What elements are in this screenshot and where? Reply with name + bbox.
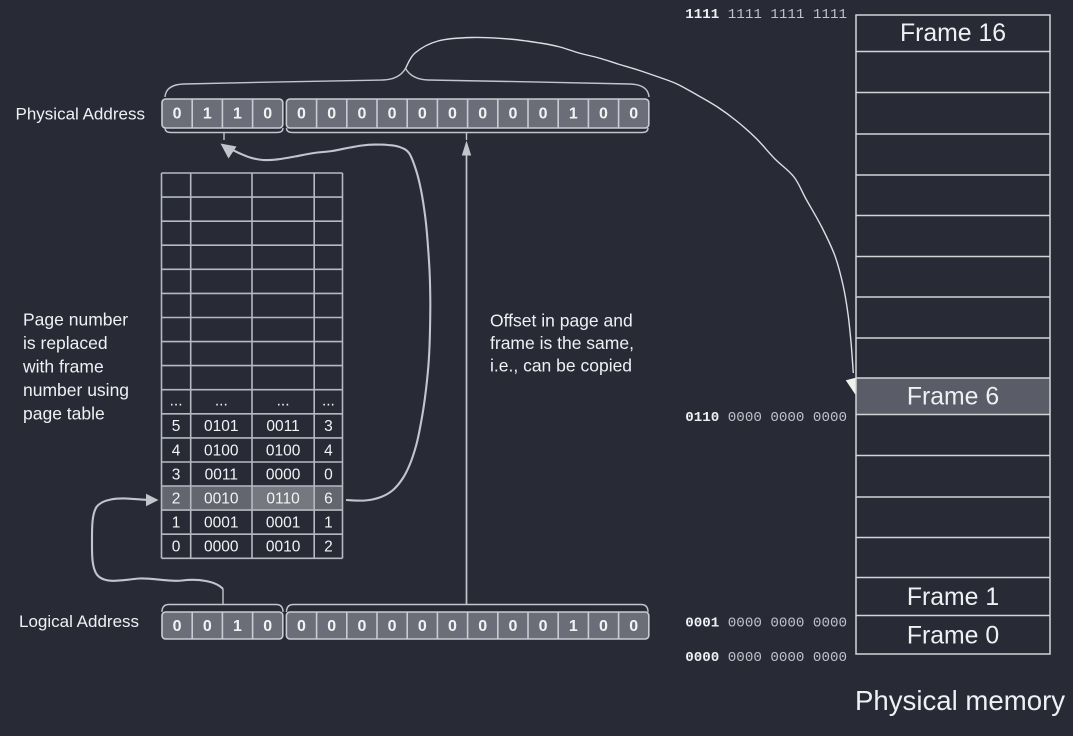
svg-text:number using: number using: [23, 380, 129, 400]
svg-text:1: 1: [233, 618, 242, 635]
svg-text:1: 1: [203, 106, 212, 123]
svg-text:0001 0000 0000 0000: 0001 0000 0000 0000: [685, 616, 847, 632]
svg-text:3: 3: [324, 418, 333, 435]
svg-text:0011: 0011: [266, 418, 299, 435]
svg-text:0: 0: [297, 106, 306, 123]
svg-text:Offset in page and: Offset in page and: [490, 311, 633, 331]
svg-text:...: ...: [277, 393, 290, 410]
svg-text:0010: 0010: [204, 491, 239, 508]
svg-text:...: ...: [322, 393, 335, 410]
svg-text:0: 0: [599, 106, 608, 123]
svg-text:0: 0: [508, 106, 517, 123]
svg-text:0: 0: [357, 106, 366, 123]
svg-text:0: 0: [629, 106, 638, 123]
svg-text:0011: 0011: [205, 466, 238, 483]
svg-text:0000: 0000: [266, 466, 301, 483]
svg-text:0: 0: [388, 106, 397, 123]
svg-text:0: 0: [448, 106, 457, 123]
svg-text:1: 1: [172, 515, 181, 532]
svg-text:4: 4: [324, 442, 333, 459]
svg-text:0: 0: [327, 618, 336, 635]
svg-text:...: ...: [170, 393, 183, 410]
svg-text:with frame: with frame: [22, 357, 104, 377]
svg-text:0: 0: [297, 618, 306, 635]
svg-text:Page number: Page number: [23, 310, 128, 330]
svg-text:0110 0000 0000 0000: 0110 0000 0000 0000: [685, 410, 847, 426]
svg-text:frame is the same,: frame is the same,: [490, 333, 634, 353]
svg-text:0: 0: [508, 618, 517, 635]
svg-text:0: 0: [263, 106, 272, 123]
svg-text:0001: 0001: [204, 515, 238, 532]
svg-text:0: 0: [357, 618, 366, 635]
svg-text:4: 4: [172, 442, 181, 459]
svg-text:0: 0: [539, 106, 548, 123]
svg-text:0: 0: [478, 618, 487, 635]
svg-text:1: 1: [569, 618, 578, 635]
svg-text:5: 5: [172, 418, 181, 435]
svg-text:0: 0: [629, 618, 638, 635]
svg-text:0: 0: [599, 618, 608, 635]
svg-text:0001: 0001: [266, 515, 300, 532]
svg-text:i.e., can be copied: i.e., can be copied: [490, 356, 632, 376]
svg-text:Logical Address: Logical Address: [19, 612, 139, 631]
svg-text:Frame 0: Frame 0: [907, 623, 999, 650]
svg-text:is replaced: is replaced: [23, 333, 108, 353]
svg-text:0: 0: [203, 618, 212, 635]
svg-text:2: 2: [324, 539, 333, 556]
svg-text:Physical Address: Physical Address: [16, 105, 145, 124]
svg-text:0: 0: [418, 106, 427, 123]
svg-text:0100: 0100: [266, 442, 301, 459]
svg-text:0: 0: [327, 106, 336, 123]
svg-text:0: 0: [418, 618, 427, 635]
svg-text:0: 0: [324, 466, 333, 483]
svg-text:1: 1: [233, 106, 242, 123]
svg-text:0: 0: [173, 618, 182, 635]
svg-text:3: 3: [172, 466, 181, 483]
svg-text:page table: page table: [23, 404, 105, 424]
svg-text:0: 0: [263, 618, 272, 635]
svg-text:1111 1111 1111 1111: 1111 1111 1111 1111: [685, 7, 847, 23]
svg-text:0010: 0010: [266, 539, 301, 556]
svg-text:Frame 1: Frame 1: [907, 584, 999, 611]
svg-text:0: 0: [478, 106, 487, 123]
svg-text:0: 0: [388, 618, 397, 635]
svg-text:...: ...: [215, 393, 228, 410]
svg-text:0: 0: [172, 539, 181, 556]
svg-text:0000 0000 0000 0000: 0000 0000 0000 0000: [685, 650, 847, 666]
svg-text:0: 0: [448, 618, 457, 635]
svg-text:6: 6: [324, 491, 333, 508]
svg-text:Physical memory: Physical memory: [855, 685, 1065, 716]
svg-text:0110: 0110: [266, 491, 300, 508]
svg-text:0: 0: [539, 618, 548, 635]
svg-text:1: 1: [324, 515, 333, 532]
svg-text:1: 1: [569, 106, 578, 123]
svg-text:Frame 16: Frame 16: [900, 20, 1006, 47]
svg-text:0: 0: [173, 106, 182, 123]
svg-text:0100: 0100: [204, 442, 239, 459]
svg-text:0101: 0101: [204, 418, 238, 435]
svg-text:Frame 6: Frame 6: [907, 384, 999, 411]
svg-text:2: 2: [172, 491, 181, 508]
svg-text:0000: 0000: [204, 539, 239, 556]
